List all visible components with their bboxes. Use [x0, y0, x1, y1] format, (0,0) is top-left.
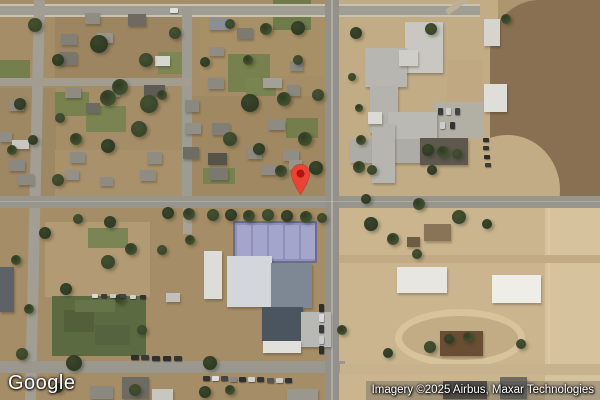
- building-roof: [86, 103, 100, 113]
- tree: [199, 386, 211, 398]
- tree: [350, 27, 362, 39]
- tree: [353, 161, 365, 173]
- parked-car: [248, 377, 255, 382]
- tree: [90, 35, 108, 53]
- tree: [14, 98, 26, 110]
- parked-car: [319, 325, 324, 333]
- building-roof: [18, 174, 34, 185]
- parked-car: [163, 356, 171, 361]
- road: [0, 6, 480, 15]
- building-roof: [368, 112, 382, 124]
- tree: [200, 57, 210, 67]
- building-roof: [65, 170, 79, 180]
- tree: [293, 55, 303, 65]
- building-roof: [0, 267, 14, 312]
- building-roof: [65, 87, 81, 98]
- google-logo[interactable]: Google: [8, 372, 76, 395]
- building-roof: [484, 84, 507, 112]
- tree: [203, 356, 217, 370]
- tree: [383, 348, 393, 358]
- terrain-zone: [447, 60, 483, 104]
- tennis-court: [269, 225, 283, 259]
- parked-car: [455, 108, 460, 115]
- tree: [28, 135, 38, 145]
- building-roof: [183, 147, 199, 159]
- tree: [337, 325, 347, 335]
- tree: [482, 219, 492, 229]
- building-roof: [208, 78, 224, 89]
- tree: [243, 55, 253, 65]
- tree: [262, 209, 274, 221]
- tennis-court: [237, 225, 251, 259]
- tree: [501, 14, 511, 24]
- tree: [463, 332, 473, 342]
- building-roof: [208, 153, 227, 165]
- tree: [452, 149, 462, 159]
- building-roof: [152, 389, 173, 400]
- tree: [298, 132, 312, 146]
- parked-car: [174, 356, 182, 361]
- parked-car: [212, 376, 219, 381]
- parked-car: [239, 377, 246, 382]
- tree: [422, 144, 434, 156]
- tree: [427, 165, 437, 175]
- tree: [241, 94, 259, 112]
- building-roof: [147, 152, 162, 164]
- building-roof: [492, 275, 541, 303]
- tree: [437, 146, 449, 158]
- tree: [66, 355, 82, 371]
- tree: [260, 23, 272, 35]
- parked-car: [319, 304, 324, 312]
- building-roof: [155, 56, 170, 66]
- tree: [225, 19, 235, 29]
- terrain-zone: [75, 300, 115, 312]
- building-roof: [407, 237, 420, 247]
- tree: [312, 89, 324, 101]
- building-roof: [100, 177, 113, 186]
- parked-car: [120, 294, 126, 298]
- tree: [300, 211, 312, 223]
- tree: [60, 283, 72, 295]
- tree: [309, 161, 323, 175]
- parked-car: [203, 376, 210, 381]
- tree: [137, 325, 147, 335]
- tree: [52, 174, 64, 186]
- tennis-court: [253, 225, 267, 259]
- tree: [387, 233, 399, 245]
- parked-car: [110, 294, 116, 298]
- tree: [516, 339, 526, 349]
- tree: [424, 341, 436, 353]
- parked-car: [483, 138, 489, 142]
- building-roof: [210, 168, 228, 180]
- building-roof: [9, 160, 25, 171]
- tree: [157, 90, 167, 100]
- tree: [277, 92, 291, 106]
- building-roof: [185, 123, 201, 134]
- tree: [125, 243, 137, 255]
- tree: [157, 245, 167, 255]
- tree: [24, 304, 34, 314]
- tree: [425, 23, 437, 35]
- tree: [361, 194, 371, 204]
- tree: [225, 385, 235, 395]
- building-roof: [484, 19, 500, 46]
- building-roof: [0, 132, 12, 142]
- building-roof: [424, 224, 451, 241]
- parked-car: [276, 378, 283, 383]
- tree: [39, 227, 51, 239]
- parked-car: [485, 163, 491, 167]
- parked-car: [267, 378, 274, 383]
- building-roof: [271, 263, 312, 308]
- tree: [356, 135, 366, 145]
- tree: [100, 90, 116, 106]
- attribution-text: Imagery ©2025 Airbus, Maxar Technologies: [366, 381, 600, 400]
- tree: [73, 214, 83, 224]
- tree: [129, 384, 141, 396]
- road: [0, 201, 600, 202]
- tree: [413, 198, 425, 210]
- tree: [139, 53, 153, 67]
- terrain-zone: [95, 325, 130, 345]
- building-roof: [70, 152, 85, 163]
- tree: [291, 21, 305, 35]
- map-marker-icon[interactable]: [290, 163, 311, 196]
- satellite-map[interactable]: Google Imagery ©2025 Airbus, Maxar Techn…: [0, 0, 600, 400]
- building-roof: [85, 13, 100, 24]
- tree: [253, 143, 265, 155]
- tree: [101, 139, 115, 153]
- building-roof: [185, 100, 199, 112]
- tree: [317, 213, 327, 223]
- parked-car: [450, 122, 455, 129]
- building-roof: [301, 312, 331, 347]
- parked-car: [221, 376, 228, 381]
- parked-car: [484, 155, 490, 159]
- parked-car: [140, 295, 146, 299]
- parked-car: [319, 314, 324, 322]
- tennis-court: [301, 225, 315, 259]
- tree: [131, 121, 147, 137]
- parked-car: [285, 378, 292, 383]
- building-roof: [287, 389, 318, 400]
- tennis-court: [285, 225, 299, 259]
- tree: [412, 249, 422, 259]
- road: [340, 364, 600, 375]
- parked-car: [440, 122, 445, 129]
- lawn-patch: [0, 60, 30, 80]
- tree: [452, 210, 466, 224]
- parked-car: [446, 108, 451, 115]
- building-roof: [128, 14, 146, 26]
- building-roof: [262, 307, 303, 341]
- road: [339, 255, 600, 263]
- building-roof: [399, 50, 418, 66]
- building-roof: [263, 341, 301, 353]
- building-roof: [397, 267, 447, 293]
- lawn-patch: [88, 228, 128, 248]
- tree: [55, 113, 65, 123]
- tree: [183, 208, 195, 220]
- building-roof: [372, 124, 395, 183]
- parked-car: [319, 336, 324, 344]
- road: [331, 0, 333, 400]
- building-roof: [140, 170, 156, 181]
- building-roof: [90, 386, 113, 399]
- tree: [70, 133, 82, 145]
- building-roof: [204, 251, 222, 299]
- tree: [162, 207, 174, 219]
- road: [0, 196, 600, 208]
- tree: [223, 132, 237, 146]
- tree: [140, 95, 158, 113]
- parked-car: [131, 355, 139, 360]
- terrain-zone: [548, 207, 550, 367]
- tree: [275, 165, 287, 177]
- parked-car: [257, 377, 264, 382]
- tree: [348, 73, 356, 81]
- tree: [101, 255, 115, 269]
- tree: [225, 209, 237, 221]
- building-roof: [263, 78, 282, 88]
- building-roof: [261, 165, 276, 175]
- parked-car: [152, 356, 160, 361]
- tree: [367, 165, 377, 175]
- parked-car: [170, 8, 178, 13]
- parked-car: [483, 146, 489, 150]
- building-roof: [268, 120, 285, 130]
- building-roof: [227, 256, 272, 307]
- tree: [207, 209, 219, 221]
- terrain-zone: [64, 310, 94, 332]
- parked-car: [101, 294, 107, 298]
- tree: [16, 348, 28, 360]
- building-roof: [209, 47, 224, 56]
- parked-car: [141, 355, 149, 360]
- tree: [7, 145, 17, 155]
- tree: [169, 27, 181, 39]
- parked-car: [92, 294, 98, 298]
- building-roof: [237, 28, 253, 39]
- tree: [355, 104, 363, 112]
- building-roof: [61, 34, 77, 45]
- tree: [28, 18, 42, 32]
- tree: [52, 54, 64, 66]
- tree: [444, 334, 454, 344]
- parked-car: [130, 295, 136, 299]
- building-roof: [166, 293, 180, 302]
- tree: [364, 217, 378, 231]
- tree: [185, 235, 195, 245]
- tree: [243, 210, 255, 222]
- tree: [104, 216, 116, 228]
- tree: [11, 255, 21, 265]
- parked-car: [319, 346, 324, 354]
- tree: [281, 210, 293, 222]
- parked-car: [230, 377, 237, 382]
- road: [0, 15, 480, 17]
- parked-car: [438, 108, 443, 115]
